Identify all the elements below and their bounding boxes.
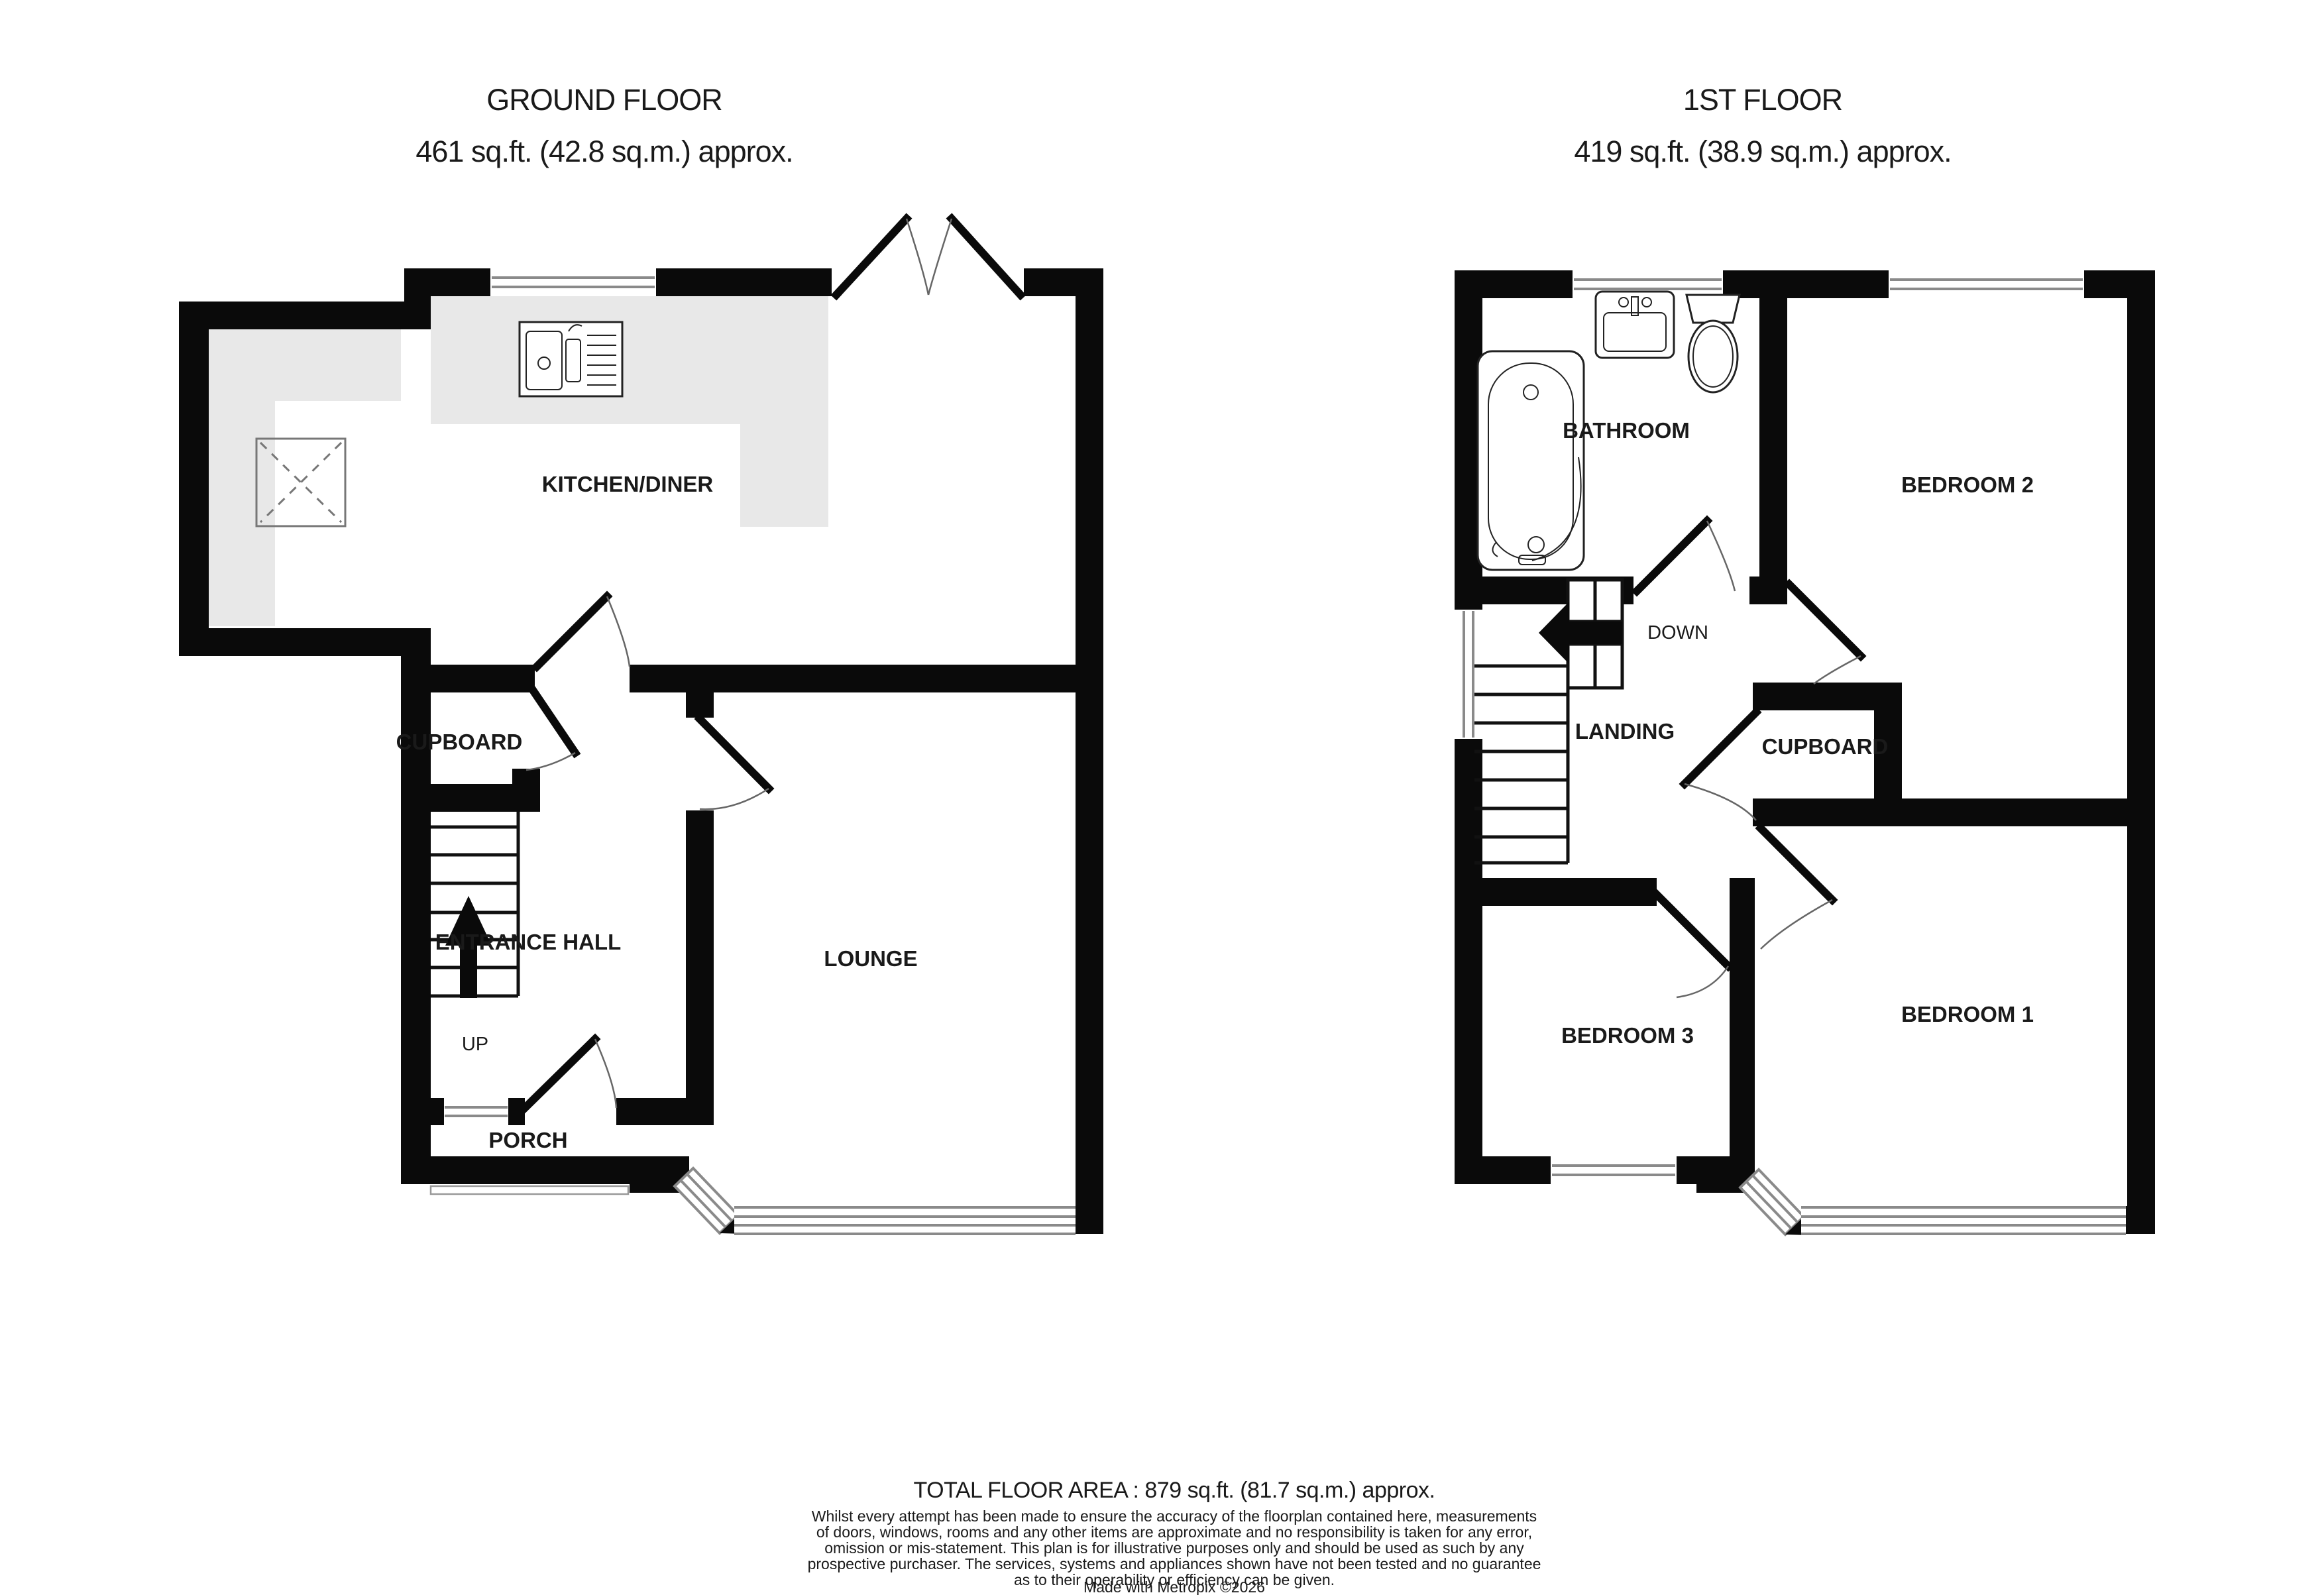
kitchen-counter-right	[740, 296, 828, 527]
bathroom-door-swing	[1637, 521, 1735, 591]
metropix-credit: Made with Metropix ©2026	[1083, 1578, 1265, 1595]
ground-floor-title: GROUND FLOOR	[486, 83, 722, 117]
bathroom-sink-icon	[1596, 292, 1674, 358]
room-label-first-cupboard: CUPBOARD	[1762, 734, 1889, 759]
room-label-ground-cupboard: CUPBOARD	[396, 730, 523, 754]
porch-step	[431, 1186, 628, 1194]
kitchen-sink-icon	[520, 322, 622, 396]
room-label-porch: PORCH	[488, 1128, 567, 1152]
disclaimer-line: omission or mis-statement. This plan is …	[824, 1539, 1524, 1557]
room-label-bedroom1: BEDROOM 1	[1901, 1002, 2034, 1026]
landing-window	[1455, 610, 1482, 739]
bedroom2-door-swing	[1789, 584, 1861, 684]
disclaimer-line: prospective purchaser. The services, sys…	[808, 1555, 1541, 1572]
toilet-icon	[1687, 295, 1740, 392]
room-label-bedroom2: BEDROOM 2	[1901, 472, 2034, 497]
ground-cupboard-door-swing	[526, 681, 575, 770]
kitchen-door-swing	[537, 596, 630, 667]
first-floor-plan: BATHROOM BEDROOM 2 LANDING CUPBOARD BEDR…	[1455, 270, 2155, 1235]
ground-floor-plan: KITCHEN/DINER CUPBOARD ENTRANCE HALL LOU…	[179, 219, 1103, 1234]
ground-floor-subtitle: 461 sq.ft. (42.8 sq.m.) approx.	[415, 135, 793, 168]
disclaimer-line: of doors, windows, rooms and any other i…	[816, 1523, 1532, 1541]
stairs-up-label: UP	[462, 1034, 488, 1055]
kitchen-counter-wing-left	[209, 321, 275, 626]
french-doors	[836, 219, 1021, 295]
kitchen-window	[490, 268, 656, 296]
floorplan-canvas: GROUND FLOOR 461 sq.ft. (42.8 sq.m.) app…	[0, 0, 2324, 1595]
front-door-swing	[525, 1039, 616, 1108]
first-floor-subtitle: 419 sq.ft. (38.9 sq.m.) approx.	[1574, 135, 1951, 168]
bedroom1-door-swing	[1761, 828, 1832, 949]
stairs-down-label: DOWN	[1647, 622, 1708, 643]
disclaimer-line: Whilst every attempt has been made to en…	[812, 1508, 1537, 1525]
bedroom3-door-swing	[1657, 895, 1728, 997]
room-label-landing: LANDING	[1575, 719, 1675, 743]
room-label-bedroom3: BEDROOM 3	[1561, 1023, 1694, 1048]
room-label-kitchen-diner: KITCHEN/DINER	[542, 472, 714, 496]
room-label-bathroom: BATHROOM	[1563, 418, 1690, 443]
bedroom1-bay-window	[1740, 1170, 2126, 1235]
lounge-bay-window	[675, 1168, 1076, 1234]
footer: TOTAL FLOOR AREA : 879 sq.ft. (81.7 sq.m…	[808, 1478, 1541, 1595]
bath-icon	[1478, 351, 1584, 570]
lounge-door-swing	[700, 719, 769, 809]
first-floor-title: 1ST FLOOR	[1683, 83, 1842, 117]
bedroom2-window	[1889, 270, 2084, 298]
room-label-entrance-hall: ENTRANCE HALL	[435, 930, 621, 954]
first-cupboard-door-swing	[1685, 712, 1756, 820]
room-label-lounge: LOUNGE	[824, 946, 917, 971]
porch-window	[444, 1098, 508, 1125]
total-floor-area: TOTAL FLOOR AREA : 879 sq.ft. (81.7 sq.m…	[914, 1478, 1435, 1503]
bedroom3-window	[1551, 1156, 1677, 1184]
